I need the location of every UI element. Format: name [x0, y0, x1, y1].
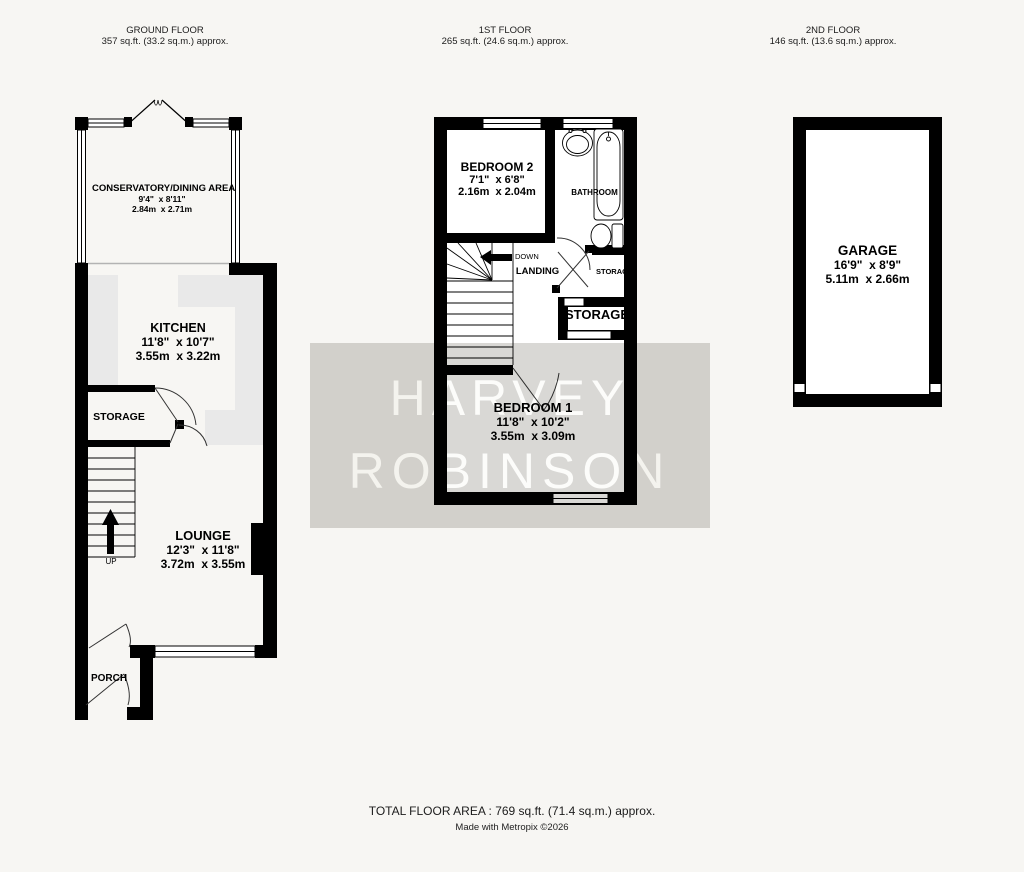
conservatory-french-doors [127, 100, 190, 125]
bathtub-icon [594, 129, 623, 220]
up-arrow-icon [102, 509, 119, 554]
garage-label: GARAGE 16'9" x 8'9" 5.11m x 2.66m [797, 243, 938, 286]
conservatory-label: CONSERVATORY/DINING AREA 9'4" x 8'11" 2.… [92, 183, 232, 214]
lounge-label: LOUNGE 12'3" x 11'8" 3.72m x 3.55m [133, 528, 273, 571]
first-floor-header: 1ST FLOOR 265 sq.ft. (24.6 sq.m.) approx… [365, 25, 645, 47]
room-name: BEDROOM 2 [447, 160, 547, 174]
watermark-line2: ROBINSON [310, 442, 710, 500]
landing-label: LANDING [510, 266, 565, 277]
room-dims-imperial: 16'9" x 8'9" [797, 258, 938, 272]
first-storage-small-label: STORAGE [596, 267, 624, 276]
ground-floor-title: GROUND FLOOR [25, 25, 305, 36]
kitchen-label: KITCHEN 11'8" x 10'7" 3.55m x 3.22m [108, 321, 248, 363]
room-dims-metric: 5.11m x 2.66m [797, 272, 938, 286]
first-floor-title: 1ST FLOOR [365, 25, 645, 36]
lounge-window [155, 646, 255, 657]
footer: TOTAL FLOOR AREA : 769 sq.ft. (71.4 sq.m… [262, 804, 762, 833]
first-storage-label: STORAGE [562, 307, 632, 322]
room-dims-metric: 2.84m x 2.71m [92, 204, 232, 214]
down-label: DOWN [515, 252, 547, 261]
room-dims-imperial: 9'4" x 8'11" [92, 194, 232, 204]
second-floor-plan: GARAGE 16'9" x 8'9" 5.11m x 2.66m [793, 117, 942, 407]
toilet-icon [591, 224, 623, 248]
room-dims-metric: 3.55m x 3.22m [108, 349, 248, 363]
porch-label: PORCH [83, 673, 135, 684]
ground-storage-label: STORAGE [89, 411, 149, 423]
ground-floor-plan: CONSERVATORY/DINING AREA 9'4" x 8'11" 2.… [75, 95, 277, 720]
room-name: KITCHEN [108, 321, 248, 335]
bathroom-label: BATHROOM [567, 188, 622, 197]
total-floor-area: TOTAL FLOOR AREA : 769 sq.ft. (71.4 sq.m… [262, 804, 762, 818]
room-dims-imperial: 12'3" x 11'8" [133, 543, 273, 557]
room-name: CONSERVATORY/DINING AREA [92, 183, 232, 194]
bedroom2-label: BEDROOM 2 7'1" x 6'8" 2.16m x 2.04m [447, 160, 547, 198]
room-dims-metric: 2.16m x 2.04m [447, 186, 547, 198]
ground-floor-header: GROUND FLOOR 357 sq.ft. (33.2 sq.m.) app… [25, 25, 305, 47]
watermark-line1: HARVEY [310, 369, 710, 427]
ground-floor-area: 357 sq.ft. (33.2 sq.m.) approx. [25, 36, 305, 47]
room-dims-imperial: 7'1" x 6'8" [447, 174, 547, 186]
room-dims-imperial: 11'8" x 10'7" [108, 335, 248, 349]
second-floor-header: 2ND FLOOR 146 sq.ft. (13.6 sq.m.) approx… [693, 25, 973, 47]
second-floor-area: 146 sq.ft. (13.6 sq.m.) approx. [693, 36, 973, 47]
watermark-band: HARVEY ROBINSON [310, 343, 710, 528]
first-floor-area: 265 sq.ft. (24.6 sq.m.) approx. [365, 36, 645, 47]
metropix-credit: Made with Metropix ©2026 [262, 822, 762, 833]
room-name: GARAGE [797, 243, 938, 258]
up-label: UP [99, 557, 123, 566]
second-floor-title: 2ND FLOOR [693, 25, 973, 36]
room-name: LOUNGE [133, 528, 273, 543]
room-dims-metric: 3.72m x 3.55m [133, 557, 273, 571]
